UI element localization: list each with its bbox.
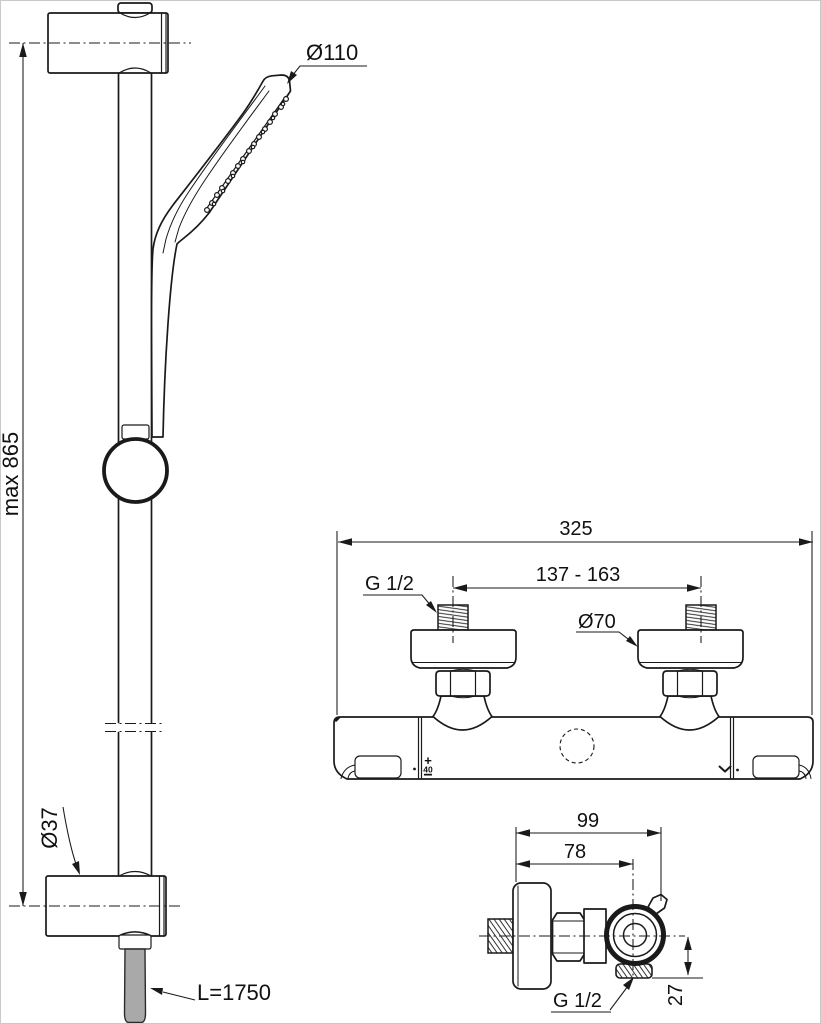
shower-hose <box>125 949 146 1023</box>
mixer-front-view: + 40 − 325 137 - 163 G 1/2 <box>334 518 813 784</box>
handle-knob-side <box>607 907 664 964</box>
dimension-outlet-thread: G 1/2 <box>551 977 634 1012</box>
hand-shower <box>152 75 291 437</box>
bracket-diameter-label: Ø37 <box>37 807 62 849</box>
slider-knob <box>104 439 167 502</box>
dimension-handle-depth: 78 <box>516 841 633 868</box>
wall-bracket-bottom <box>46 872 166 950</box>
mixer-body <box>334 717 813 779</box>
dimension-inlet-thread: G 1/2 <box>363 573 437 613</box>
dimension-escutcheon-diameter: Ø70 <box>576 611 638 647</box>
shower-set-technical-drawing: max 865 Ø110 Ø37 L=1750 <box>1 1 820 1023</box>
dimension-overall-width: 325 <box>337 518 813 715</box>
rail-break-mark <box>105 724 165 732</box>
head-diameter-label: Ø110 <box>306 40 358 65</box>
escutcheon-diameter-label: Ø70 <box>578 611 616 633</box>
escutcheon-left <box>411 630 516 668</box>
depth-label: 99 <box>577 810 599 832</box>
overall-width-label: 325 <box>559 518 592 540</box>
inlet-nut-left <box>436 669 490 698</box>
mixer-side-view: 99 78 27 G 1/2 <box>479 810 703 1012</box>
shower-outlet <box>616 964 652 978</box>
temp-dot-mark <box>413 768 416 771</box>
dimension-head-diameter: Ø110 <box>287 40 367 84</box>
hose-length-label: L=1750 <box>197 980 271 1005</box>
temp-minus-mark: − <box>423 767 432 784</box>
escutcheon-right <box>638 630 743 668</box>
max-height-label: max 865 <box>1 432 23 516</box>
hose-connector <box>119 935 151 949</box>
outlet-offset-label: 27 <box>665 984 687 1006</box>
rail-top-cap <box>118 3 152 13</box>
handle-grip-left <box>355 756 401 778</box>
dimension-inlet-spacing: 137 - 163 <box>453 564 701 592</box>
wall-bracket-top <box>48 3 168 73</box>
nut-side <box>553 913 585 961</box>
dimension-hose-length: L=1750 <box>150 980 271 1005</box>
flow-dot-mark <box>736 769 739 772</box>
handle-grip-right <box>753 756 799 778</box>
handle-depth-label: 78 <box>564 841 586 863</box>
inlet-nut-right <box>663 669 717 698</box>
dimension-max-height: max 865 <box>1 43 27 906</box>
inlet-spacing-label: 137 - 163 <box>536 564 621 586</box>
dimension-bracket-diameter: Ø37 <box>37 807 80 875</box>
outlet-thread-label: G 1/2 <box>553 990 602 1012</box>
slider-holder-tab <box>122 425 149 439</box>
slide-rail-figure: max 865 Ø110 Ø37 L=1750 <box>1 3 367 1023</box>
technical-drawing-canvas: max 865 Ø110 Ø37 L=1750 <box>0 0 821 1024</box>
inlet-thread-label: G 1/2 <box>365 573 414 595</box>
